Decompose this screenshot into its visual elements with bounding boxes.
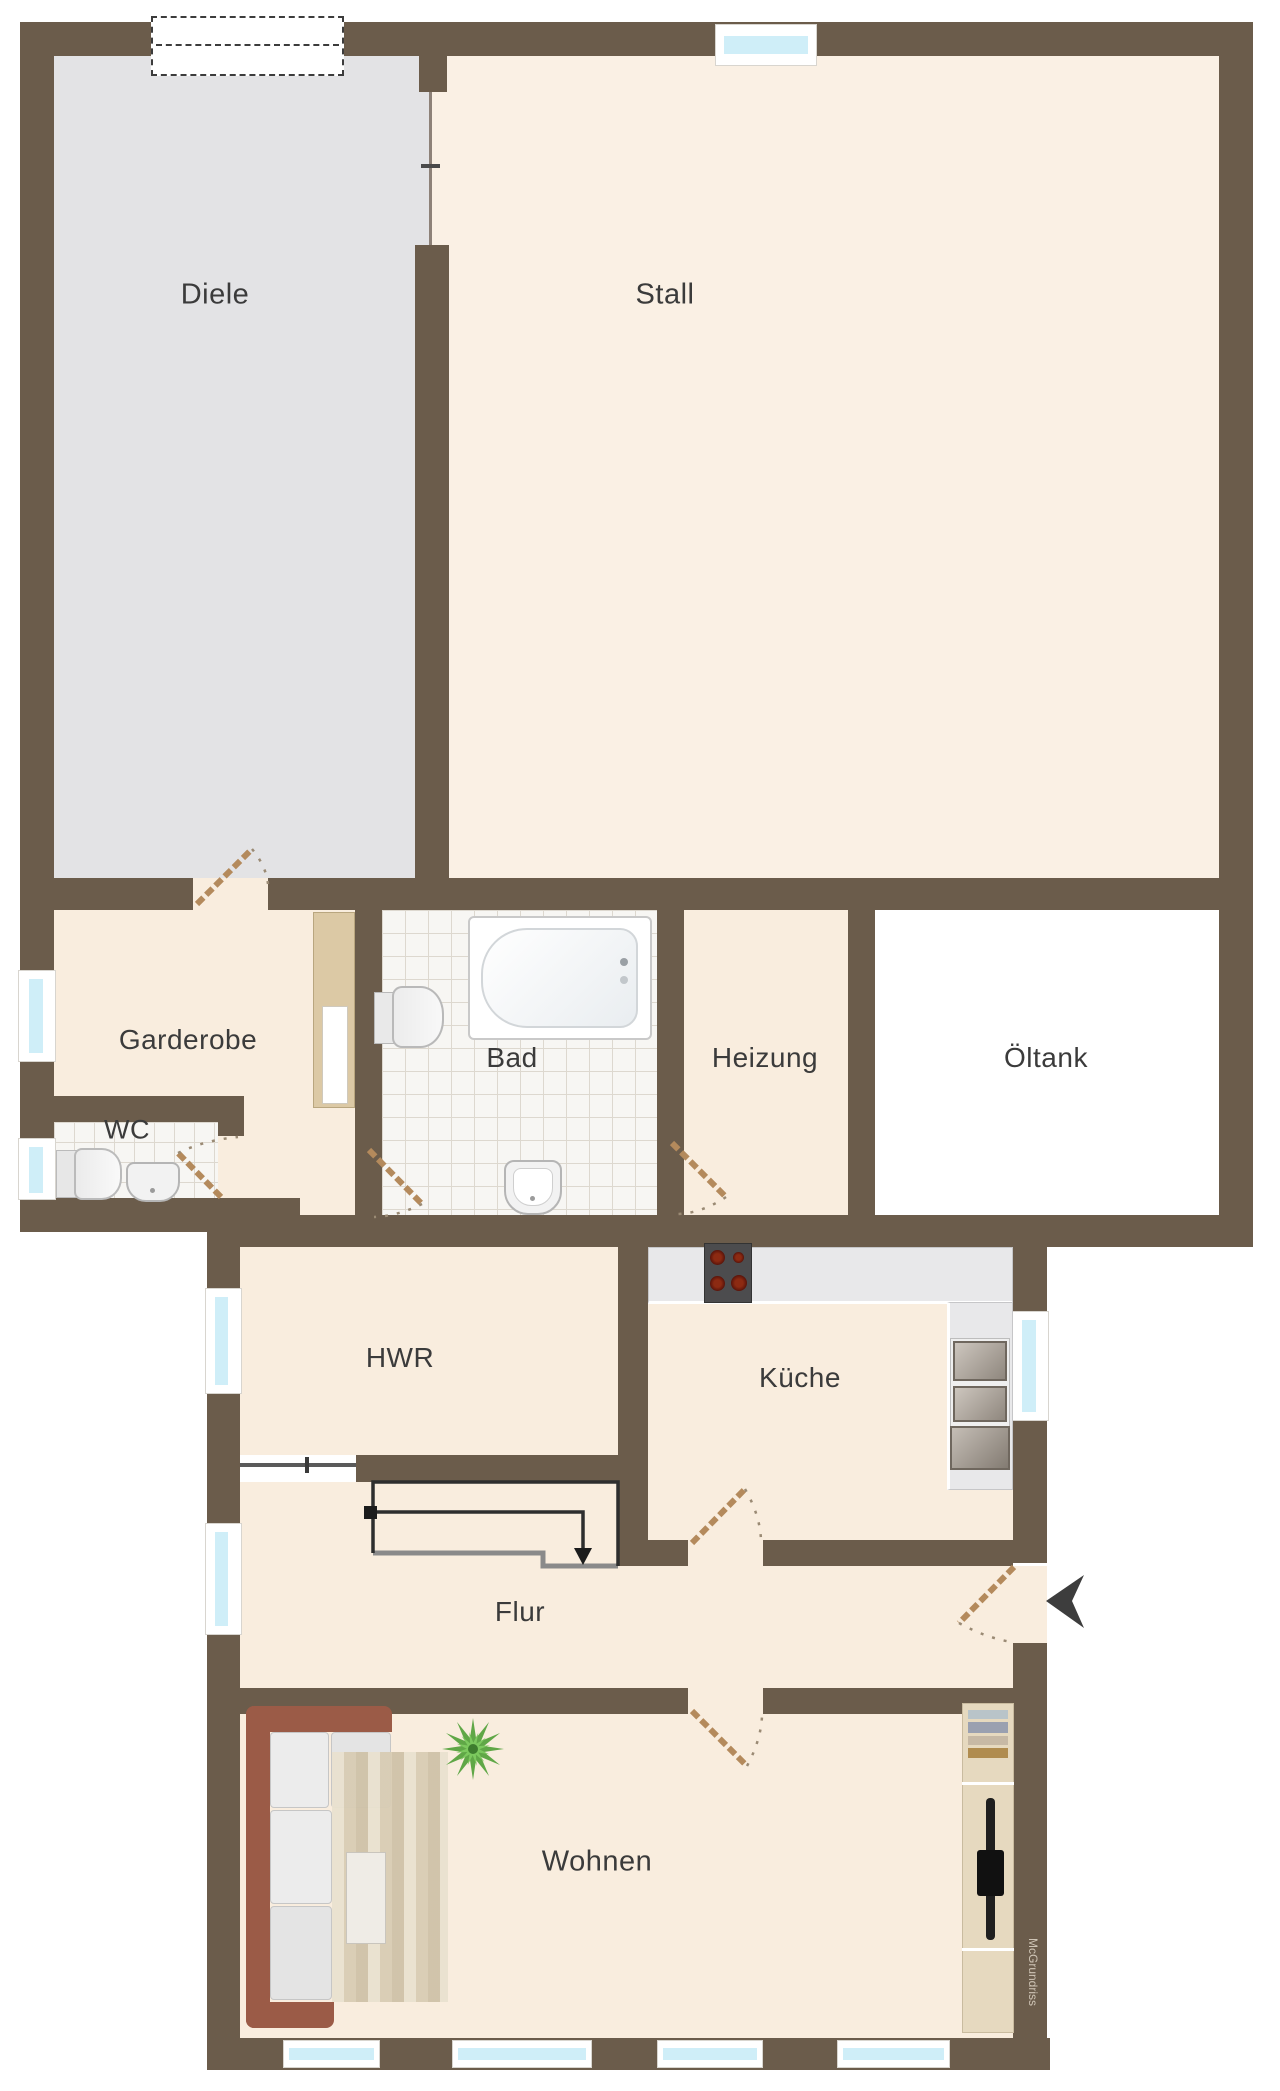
door-diele-garderobe (197, 849, 252, 904)
door-wc (178, 1153, 221, 1197)
door-wc-arc (178, 1137, 238, 1153)
door-entrance (959, 1567, 1014, 1623)
stairs-start-marker (364, 1506, 377, 1519)
floorplan: Diele Stall Garderobe WC Bad Heizung Ölt… (0, 0, 1280, 2091)
stairs-direction-arrow-icon (574, 1548, 592, 1565)
room-label-bad: Bad (486, 1042, 537, 1074)
door-kueche-arc (745, 1489, 761, 1540)
entrance-arrow-icon (1046, 1575, 1084, 1628)
room-label-diele: Diele (181, 279, 250, 312)
room-label-hwr: HWR (366, 1342, 434, 1374)
door-wohnen (692, 1711, 747, 1766)
door-diele-garderobe-arc (252, 849, 268, 884)
room-label-wohnen: Wohnen (542, 1846, 653, 1879)
room-label-oeltank: Öltank (1004, 1042, 1088, 1074)
door-kueche (692, 1489, 745, 1543)
door-heizung-arc (678, 1197, 726, 1214)
room-label-wc: WC (104, 1115, 150, 1146)
door-heizung (672, 1143, 726, 1197)
door-wohnen-arc (747, 1716, 762, 1766)
door-bad-arc (374, 1204, 422, 1217)
plant-icon (442, 1718, 504, 1780)
room-label-kueche: Küche (759, 1362, 841, 1394)
stairs (364, 1482, 618, 1566)
room-label-stall: Stall (636, 279, 695, 312)
room-label-flur: Flur (495, 1596, 545, 1628)
room-label-heizung: Heizung (712, 1042, 818, 1074)
door-entrance-arc (959, 1623, 1012, 1642)
door-bad (369, 1150, 422, 1204)
watermark: McGrundriss (1026, 1938, 1040, 2006)
room-label-garderobe: Garderobe (119, 1024, 257, 1056)
